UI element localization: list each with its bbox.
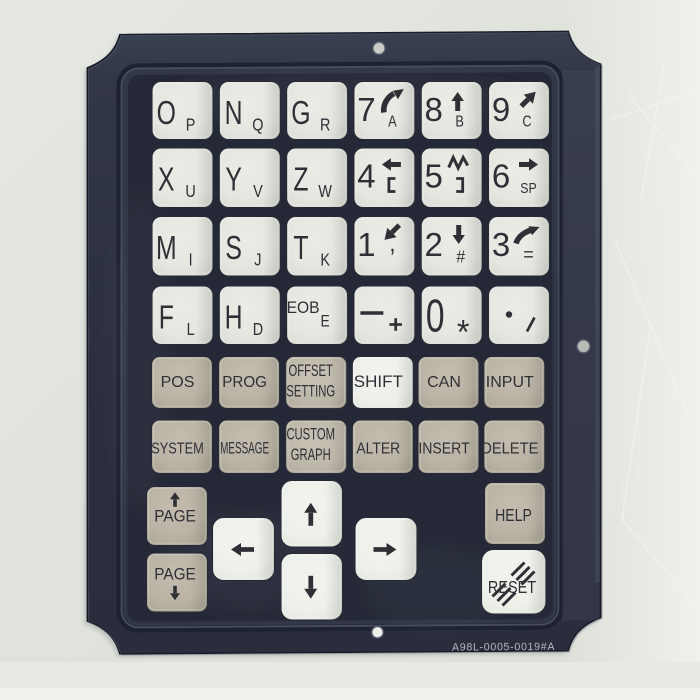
svg-text:F: F [159, 299, 174, 337]
svg-text:R: R [320, 115, 330, 135]
svg-text:2: 2 [425, 226, 443, 263]
svg-text:0: 0 [426, 290, 445, 341]
svg-text:G: G [291, 94, 310, 132]
svg-text:GRAPH: GRAPH [291, 445, 331, 464]
svg-text:3: 3 [492, 226, 510, 263]
svg-text:U: U [185, 182, 195, 202]
svg-text:4: 4 [357, 158, 375, 195]
svg-text:SHIFT: SHIFT [354, 372, 403, 391]
svg-text:X: X [158, 161, 175, 199]
svg-text:Z: Z [293, 161, 308, 199]
svg-text:9: 9 [492, 91, 510, 128]
svg-text:E: E [320, 312, 329, 330]
svg-text:*: * [457, 314, 470, 352]
svg-text:EOB: EOB [287, 298, 320, 317]
svg-text:M: M [156, 229, 177, 267]
svg-text:7: 7 [357, 91, 375, 128]
svg-text:CAN: CAN [427, 374, 461, 391]
svg-text:CUSTOM: CUSTOM [286, 424, 335, 443]
svg-text:1: 1 [357, 226, 375, 263]
svg-text:H: H [225, 299, 243, 337]
svg-text:PAGE: PAGE [154, 508, 196, 525]
svg-text:B: B [455, 113, 464, 131]
svg-text:T: T [293, 229, 308, 267]
svg-text:HELP: HELP [495, 507, 532, 526]
svg-text:PROG: PROG [222, 374, 267, 391]
svg-text:MESSAGE: MESSAGE [220, 439, 269, 457]
svg-text:PAGE: PAGE [154, 566, 196, 583]
svg-text:ALTER: ALTER [356, 440, 400, 458]
svg-text:S: S [225, 229, 242, 267]
svg-text:INSERT: INSERT [418, 440, 469, 458]
svg-text:N: N [225, 94, 243, 132]
svg-text:A98L-0005-0019#A: A98L-0005-0019#A [452, 641, 555, 654]
svg-text:6: 6 [492, 158, 510, 195]
svg-text:,: , [389, 229, 395, 258]
svg-text:C: C [522, 113, 531, 131]
svg-text:L: L [187, 320, 195, 340]
svg-text:V: V [253, 182, 263, 202]
svg-text:SYSTEM: SYSTEM [151, 440, 204, 458]
svg-text:W: W [318, 182, 332, 202]
svg-text:SETTING: SETTING [286, 381, 335, 400]
svg-text:J: J [254, 250, 261, 270]
svg-text:POS: POS [161, 374, 195, 391]
svg-text:5: 5 [425, 158, 443, 195]
svg-text:RESET: RESET [488, 579, 536, 597]
svg-text:OFFSET: OFFSET [289, 361, 334, 380]
svg-text:D: D [253, 320, 263, 340]
svg-text:Y: Y [225, 161, 242, 199]
svg-text:O: O [157, 94, 176, 132]
svg-text:P: P [186, 115, 196, 135]
svg-text:I: I [189, 250, 193, 270]
svg-text:8: 8 [425, 91, 443, 128]
svg-text:DELETE: DELETE [481, 440, 538, 458]
svg-text:=: = [523, 244, 534, 266]
svg-text:SP: SP [520, 180, 536, 196]
svg-text:Q: Q [252, 115, 263, 135]
svg-text:INPUT: INPUT [486, 374, 534, 391]
svg-text:K: K [320, 250, 330, 270]
svg-text:A: A [388, 113, 397, 131]
svg-text:#: # [456, 247, 465, 267]
